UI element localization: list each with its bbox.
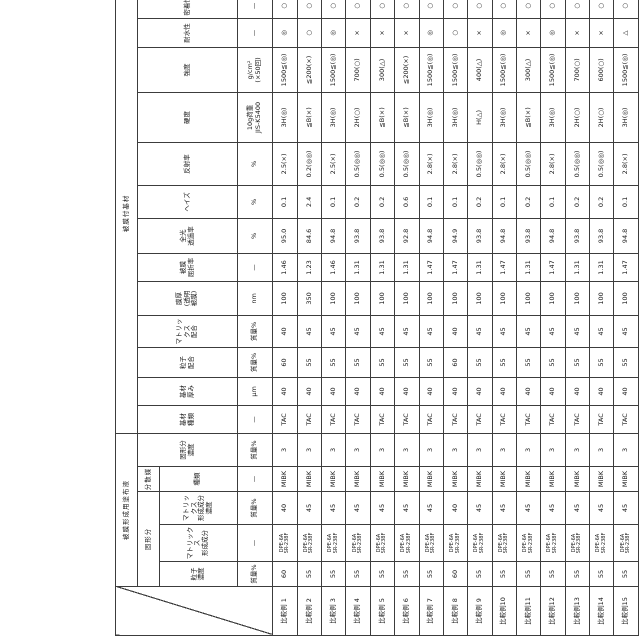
cell-14-adhesion: ○ [590, 0, 614, 18]
cell-3-matrix_blend: 45 [322, 315, 346, 347]
cell-10-water_resistance: ◎ [492, 18, 516, 47]
cell-13-matrix_conc: 45 [565, 492, 589, 525]
cell-10-particle_conc: 55 [492, 562, 516, 587]
cell-6-particle_conc: 55 [395, 562, 419, 587]
cell-2-water_resistance: ○ [297, 18, 321, 47]
col-header-substrate_thickness: 基材 厚み [138, 377, 238, 405]
cell-8-particle_conc: 60 [443, 562, 467, 587]
cell-9-adhesion: ○ [468, 0, 492, 18]
cell-7-particle_conc: 55 [419, 562, 443, 587]
cell-8-medium_type: MIBK [443, 467, 467, 492]
cell-13-film_thickness: 100 [565, 281, 589, 315]
col-header-adhesion: 密着性 [138, 0, 238, 18]
cell-6-strength: ≦200(×) [395, 47, 419, 92]
cell-12-hardness: 3H(◎) [541, 92, 565, 142]
cell-2-medium_type: MIBK [297, 467, 321, 492]
cell-3-strength: 1500≦(◎) [322, 47, 346, 92]
unit-haze: % [237, 185, 273, 218]
cell-9-matrix_blend: 45 [468, 315, 492, 347]
col-header-matrix_blend: マトリックス 配合 [138, 315, 238, 347]
cell-1-film_thickness: 100 [273, 281, 297, 315]
cell-14-matrix_blend: 45 [590, 315, 614, 347]
cell-1-strength: 1500≦(◎) [273, 47, 297, 92]
cell-15-hardness: 3H(◎) [614, 92, 639, 142]
cell-14-refractive_index: 1.31 [590, 253, 614, 281]
row-label-3: 比較例 3 [322, 587, 346, 636]
col-header-particle_blend: 粒子 配合 [138, 347, 238, 377]
cell-3-hardness: 3H(◎) [322, 92, 346, 142]
cell-3-particle_blend: 55 [322, 347, 346, 377]
cell-10-matrix_conc: 45 [492, 492, 516, 525]
unit-matrix_component: — [237, 525, 273, 562]
cell-7-adhesion: ○ [419, 0, 443, 18]
col-header-solid_conc: 固形分 濃度 [138, 433, 238, 466]
cell-5-matrix_blend: 45 [370, 315, 394, 347]
cell-9-transmittance: 93.8 [468, 218, 492, 253]
cell-15-adhesion: ○ [614, 0, 639, 18]
cell-13-haze: 0.2 [565, 185, 589, 218]
col-header-film_thickness: 膜厚 (透明 被膜) [138, 281, 238, 315]
cell-15-film_thickness: 100 [614, 281, 639, 315]
col-header-hardness: 硬度 [138, 92, 238, 142]
col-header-substrate_type: 基材 種類 [138, 405, 238, 433]
cell-11-particle_conc: 55 [516, 562, 540, 587]
cell-11-adhesion: ○ [516, 0, 540, 18]
cell-4-adhesion: ○ [346, 0, 370, 18]
cell-13-solid_conc: 3 [565, 433, 589, 466]
cell-15-water_resistance: △ [614, 18, 639, 47]
group-header-coated-substrate: 被膜付基材 [116, 0, 138, 433]
cell-12-solid_conc: 3 [541, 433, 565, 466]
cell-10-strength: 1500≦(◎) [492, 47, 516, 92]
cell-4-transmittance: 93.8 [346, 218, 370, 253]
cell-11-matrix_conc: 45 [516, 492, 540, 525]
cell-1-reflectance: 2.5(×) [273, 142, 297, 185]
cell-2-matrix_component: DPE-6A SR-238F [297, 525, 321, 562]
cell-15-reflectance: 2.8(×) [614, 142, 639, 185]
cell-15-matrix_component: DPE-6A SR-238F [614, 525, 639, 562]
cell-6-reflectance: 0.5(◎◎) [395, 142, 419, 185]
cell-13-strength: 700(○) [565, 47, 589, 92]
cell-6-medium_type: MIBK [395, 467, 419, 492]
unit-particle_blend: 質量% [237, 347, 273, 377]
row-label-14: 比較例14 [590, 587, 614, 636]
col-header-refractive_index: 被膜 屈折率 [138, 253, 238, 281]
cell-6-hardness: ≦B(×) [395, 92, 419, 142]
cell-10-matrix_component: DPE-6A SR-238F [492, 525, 516, 562]
cell-1-matrix_conc: 40 [273, 492, 297, 525]
cell-8-haze: 0.1 [443, 185, 467, 218]
cell-14-hardness: 2H(○) [590, 92, 614, 142]
cell-15-haze: 0.1 [614, 185, 639, 218]
cell-5-transmittance: 93.8 [370, 218, 394, 253]
cell-13-hardness: 2H(○) [565, 92, 589, 142]
cell-2-substrate_type: TAC [297, 405, 321, 433]
cell-1-adhesion: ○ [273, 0, 297, 18]
row-label-7: 比較例 7 [419, 587, 443, 636]
cell-2-particle_conc: 55 [297, 562, 321, 587]
cell-6-substrate_thickness: 40 [395, 377, 419, 405]
cell-7-film_thickness: 100 [419, 281, 443, 315]
cell-13-medium_type: MIBK [565, 467, 589, 492]
cell-9-particle_blend: 55 [468, 347, 492, 377]
cell-8-matrix_blend: 40 [443, 315, 467, 347]
cell-7-solid_conc: 3 [419, 433, 443, 466]
cell-10-adhesion: ○ [492, 0, 516, 18]
cell-11-transmittance: 93.8 [516, 218, 540, 253]
cell-6-adhesion: ○ [395, 0, 419, 18]
unit-particle_conc: 質量% [237, 562, 273, 587]
cell-6-particle_blend: 55 [395, 347, 419, 377]
row-label-9: 比較例 9 [468, 587, 492, 636]
cell-1-particle_conc: 60 [273, 562, 297, 587]
cell-3-particle_conc: 55 [322, 562, 346, 587]
cell-12-reflectance: 2.8(×) [541, 142, 565, 185]
cell-4-reflectance: 0.5(◎◎) [346, 142, 370, 185]
cell-8-transmittance: 94.9 [443, 218, 467, 253]
unit-film_thickness: nm [237, 281, 273, 315]
cell-2-strength: ≦200(×) [297, 47, 321, 92]
unit-strength: g/cm² (×50回) [237, 47, 273, 92]
col-header-particle_conc: 粒子 濃度 [159, 562, 237, 587]
cell-12-water_resistance: ◎ [541, 18, 565, 47]
unit-water_resistance: — [237, 18, 273, 47]
cell-12-matrix_conc: 45 [541, 492, 565, 525]
cell-14-solid_conc: 3 [590, 433, 614, 466]
cell-2-hardness: ≦B(×) [297, 92, 321, 142]
cell-3-haze: 0.1 [322, 185, 346, 218]
cell-6-refractive_index: 1.31 [395, 253, 419, 281]
unit-hardness: 10g荷重 JIS-K5400 [237, 92, 273, 142]
cell-8-strength: 1500≦(◎) [443, 47, 467, 92]
cell-5-matrix_conc: 45 [370, 492, 394, 525]
cell-14-strength: 600(○) [590, 47, 614, 92]
cell-7-refractive_index: 1.47 [419, 253, 443, 281]
cell-10-medium_type: MIBK [492, 467, 516, 492]
cell-11-film_thickness: 100 [516, 281, 540, 315]
cell-11-substrate_thickness: 40 [516, 377, 540, 405]
cell-10-substrate_thickness: 40 [492, 377, 516, 405]
cell-10-solid_conc: 3 [492, 433, 516, 466]
cell-5-particle_conc: 55 [370, 562, 394, 587]
cell-2-matrix_blend: 45 [297, 315, 321, 347]
cell-8-hardness: 3H(◎) [443, 92, 467, 142]
cell-9-reflectance: 0.5(◎◎) [468, 142, 492, 185]
cell-14-film_thickness: 100 [590, 281, 614, 315]
cell-15-particle_blend: 55 [614, 347, 639, 377]
cell-5-haze: 0.2 [370, 185, 394, 218]
cell-14-haze: 0.2 [590, 185, 614, 218]
subgroup-header-solid_content: 固形分 [138, 492, 159, 587]
row-label-15: 比較例15 [614, 587, 639, 636]
cell-1-particle_blend: 60 [273, 347, 297, 377]
cell-3-reflectance: 2.5(×) [322, 142, 346, 185]
cell-2-matrix_conc: 45 [297, 492, 321, 525]
cell-14-medium_type: MIBK [590, 467, 614, 492]
cell-2-solid_conc: 3 [297, 433, 321, 466]
cell-2-refractive_index: 1.23 [297, 253, 321, 281]
cell-7-water_resistance: ◎ [419, 18, 443, 47]
cell-5-substrate_thickness: 40 [370, 377, 394, 405]
cell-12-adhesion: ○ [541, 0, 565, 18]
cell-8-reflectance: 2.8(×) [443, 142, 467, 185]
cell-9-matrix_conc: 45 [468, 492, 492, 525]
unit-solid_conc: 質量% [237, 433, 273, 466]
cell-8-substrate_type: TAC [443, 405, 467, 433]
cell-12-haze: 0.1 [541, 185, 565, 218]
cell-13-matrix_blend: 45 [565, 315, 589, 347]
cell-1-haze: 0.1 [273, 185, 297, 218]
cell-1-substrate_type: TAC [273, 405, 297, 433]
unit-refractive_index: — [237, 253, 273, 281]
cell-6-film_thickness: 100 [395, 281, 419, 315]
row-label-6: 比較例 6 [395, 587, 419, 636]
cell-9-haze: 0.2 [468, 185, 492, 218]
cell-8-adhesion: ○ [443, 0, 467, 18]
cell-5-refractive_index: 1.31 [370, 253, 394, 281]
cell-12-matrix_blend: 45 [541, 315, 565, 347]
subgroup-header-dispersion_medium: 分散媒 [138, 467, 159, 492]
cell-9-substrate_thickness: 40 [468, 377, 492, 405]
cell-14-transmittance: 93.8 [590, 218, 614, 253]
cell-14-particle_conc: 55 [590, 562, 614, 587]
cell-10-haze: 0.1 [492, 185, 516, 218]
cell-13-substrate_type: TAC [565, 405, 589, 433]
cell-13-transmittance: 93.8 [565, 218, 589, 253]
cell-4-particle_blend: 55 [346, 347, 370, 377]
cell-10-matrix_blend: 45 [492, 315, 516, 347]
row-label-10: 比較例10 [492, 587, 516, 636]
cell-12-transmittance: 94.8 [541, 218, 565, 253]
cell-1-water_resistance: ◎ [273, 18, 297, 47]
cell-5-strength: 300(△) [370, 47, 394, 92]
cell-12-particle_blend: 55 [541, 347, 565, 377]
col-header-water_resistance: 耐水性 [138, 18, 238, 47]
cell-12-medium_type: MIBK [541, 467, 565, 492]
group-header-coating-liquid: 被膜形成用塗布液 [116, 433, 138, 586]
unit-substrate_thickness: μm [237, 377, 273, 405]
cell-13-substrate_thickness: 40 [565, 377, 589, 405]
unit-adhesion: — [237, 0, 273, 18]
cell-2-particle_blend: 55 [297, 347, 321, 377]
cell-13-matrix_component: DPE-6A SR-238F [565, 525, 589, 562]
cell-12-substrate_type: TAC [541, 405, 565, 433]
cell-7-particle_blend: 55 [419, 347, 443, 377]
cell-11-matrix_blend: 45 [516, 315, 540, 347]
cell-4-substrate_thickness: 40 [346, 377, 370, 405]
row-label-4: 比較例 4 [346, 587, 370, 636]
cell-10-hardness: 3H(◎) [492, 92, 516, 142]
cell-1-hardness: 3H(◎) [273, 92, 297, 142]
unit-matrix_blend: 質量% [237, 315, 273, 347]
cell-5-medium_type: MIBK [370, 467, 394, 492]
cell-2-reflectance: 0.2(◎◎) [297, 142, 321, 185]
cell-15-refractive_index: 1.47 [614, 253, 639, 281]
cell-11-water_resistance: × [516, 18, 540, 47]
cell-3-water_resistance: ◎ [322, 18, 346, 47]
cell-9-strength: 400(△) [468, 47, 492, 92]
cell-7-reflectance: 2.8(×) [419, 142, 443, 185]
cell-9-particle_conc: 55 [468, 562, 492, 587]
cell-9-solid_conc: 3 [468, 433, 492, 466]
col-header-matrix_conc: マトリックス 形成成分 濃度 [159, 492, 237, 525]
unit-matrix_conc: 質量% [237, 492, 273, 525]
cell-3-substrate_thickness: 40 [322, 377, 346, 405]
cell-12-substrate_thickness: 40 [541, 377, 565, 405]
row-label-12: 比較例12 [541, 587, 565, 636]
unit-transmittance: % [237, 218, 273, 253]
cell-7-substrate_thickness: 40 [419, 377, 443, 405]
cell-10-film_thickness: 100 [492, 281, 516, 315]
cell-13-particle_blend: 55 [565, 347, 589, 377]
cell-5-substrate_type: TAC [370, 405, 394, 433]
cell-6-solid_conc: 3 [395, 433, 419, 466]
cell-13-reflectance: 0.5(◎◎) [565, 142, 589, 185]
cell-13-adhesion: ○ [565, 0, 589, 18]
cell-11-hardness: ≦B(×) [516, 92, 540, 142]
cell-4-medium_type: MIBK [346, 467, 370, 492]
cell-8-refractive_index: 1.47 [443, 253, 467, 281]
col-header-haze: ヘイズ [138, 185, 238, 218]
cell-8-substrate_thickness: 40 [443, 377, 467, 405]
cell-5-matrix_component: DPE-6A SR-238F [370, 525, 394, 562]
cell-7-strength: 1500≦(◎) [419, 47, 443, 92]
cell-2-substrate_thickness: 40 [297, 377, 321, 405]
cell-4-matrix_conc: 45 [346, 492, 370, 525]
cell-15-particle_conc: 55 [614, 562, 639, 587]
cell-1-substrate_thickness: 40 [273, 377, 297, 405]
cell-1-refractive_index: 1.46 [273, 253, 297, 281]
cell-10-substrate_type: TAC [492, 405, 516, 433]
row-label-5: 比較例 5 [370, 587, 394, 636]
cell-2-adhesion: ○ [297, 0, 321, 18]
cell-8-solid_conc: 3 [443, 433, 467, 466]
cell-9-hardness: H(△) [468, 92, 492, 142]
cell-3-matrix_conc: 45 [322, 492, 346, 525]
cell-11-strength: 300(△) [516, 47, 540, 92]
cell-5-film_thickness: 100 [370, 281, 394, 315]
cell-11-medium_type: MIBK [516, 467, 540, 492]
cell-4-substrate_type: TAC [346, 405, 370, 433]
cell-6-matrix_blend: 45 [395, 315, 419, 347]
cell-2-haze: 2.4 [297, 185, 321, 218]
cell-7-matrix_conc: 45 [419, 492, 443, 525]
cell-15-transmittance: 94.8 [614, 218, 639, 253]
cell-9-matrix_component: DPE-6A SR-238F [468, 525, 492, 562]
cell-10-particle_blend: 55 [492, 347, 516, 377]
unit-substrate_type: — [237, 405, 273, 433]
cell-8-particle_blend: 60 [443, 347, 467, 377]
cell-4-matrix_component: DPE-6A SR-238F [346, 525, 370, 562]
cell-9-water_resistance: × [468, 18, 492, 47]
cell-14-water_resistance: × [590, 18, 614, 47]
row-label-8: 比較例 8 [443, 587, 467, 636]
cell-3-adhesion: ○ [322, 0, 346, 18]
cell-10-transmittance: 94.8 [492, 218, 516, 253]
col-header-reflectance: 反射率 [138, 142, 238, 185]
cell-6-matrix_component: DPE-6A SR-238F [395, 525, 419, 562]
cell-11-refractive_index: 1.31 [516, 253, 540, 281]
cell-7-matrix_blend: 45 [419, 315, 443, 347]
cell-5-particle_blend: 55 [370, 347, 394, 377]
cell-11-reflectance: 0.5(◎◎) [516, 142, 540, 185]
cell-15-substrate_type: TAC [614, 405, 639, 433]
cell-2-film_thickness: 350 [297, 281, 321, 315]
cell-10-refractive_index: 1.47 [492, 253, 516, 281]
cell-11-haze: 0.2 [516, 185, 540, 218]
cell-4-hardness: 2H(○) [346, 92, 370, 142]
cell-4-water_resistance: × [346, 18, 370, 47]
patent-page: { "page": { "background": "#ffffff", "li… [0, 0, 640, 640]
cell-7-medium_type: MIBK [419, 467, 443, 492]
cell-15-medium_type: MIBK [614, 467, 639, 492]
cell-12-film_thickness: 100 [541, 281, 565, 315]
cell-1-medium_type: MIBK [273, 467, 297, 492]
cell-4-particle_conc: 55 [346, 562, 370, 587]
cell-9-refractive_index: 1.31 [468, 253, 492, 281]
cell-4-refractive_index: 1.31 [346, 253, 370, 281]
cell-5-solid_conc: 3 [370, 433, 394, 466]
cell-12-strength: 1500≦(◎) [541, 47, 565, 92]
cell-11-matrix_component: DPE-6A SR-238F [516, 525, 540, 562]
cell-14-matrix_component: DPE-6A SR-238F [590, 525, 614, 562]
cell-3-medium_type: MIBK [322, 467, 346, 492]
cell-6-substrate_type: TAC [395, 405, 419, 433]
row-label-11: 比較例11 [516, 587, 540, 636]
cell-15-matrix_blend: 45 [614, 315, 639, 347]
cell-11-particle_blend: 55 [516, 347, 540, 377]
cell-8-matrix_component: DPE-6A SR-238F [443, 525, 467, 562]
cell-14-particle_blend: 55 [590, 347, 614, 377]
cell-6-water_resistance: × [395, 18, 419, 47]
col-header-matrix_component: マトリックス 形成成分 [159, 525, 237, 562]
cell-15-solid_conc: 3 [614, 433, 639, 466]
rotated-table-container: 被膜形成用塗布液被膜付基材固形分分散媒固形分 濃度基材 種類基材 厚み粒子 配合… [115, 4, 639, 636]
cell-1-matrix_blend: 40 [273, 315, 297, 347]
cell-14-substrate_type: TAC [590, 405, 614, 433]
table-body: 被膜形成用塗布液被膜付基材固形分分散媒固形分 濃度基材 種類基材 厚み粒子 配合… [116, 0, 639, 636]
cell-4-solid_conc: 3 [346, 433, 370, 466]
cell-15-strength: 1500≦(◎) [614, 47, 639, 92]
cell-12-particle_conc: 55 [541, 562, 565, 587]
col-header-strength: 強度 [138, 47, 238, 92]
cell-3-film_thickness: 100 [322, 281, 346, 315]
cell-9-substrate_type: TAC [468, 405, 492, 433]
cell-9-film_thickness: 100 [468, 281, 492, 315]
row-label-1: 比較例 1 [273, 587, 297, 636]
cell-8-water_resistance: ○ [443, 18, 467, 47]
cell-1-solid_conc: 3 [273, 433, 297, 466]
cell-7-matrix_component: DPE-6A SR-238F [419, 525, 443, 562]
cell-2-transmittance: 84.6 [297, 218, 321, 253]
cell-15-matrix_conc: 45 [614, 492, 639, 525]
cell-13-refractive_index: 1.31 [565, 253, 589, 281]
cell-15-substrate_thickness: 40 [614, 377, 639, 405]
cell-7-hardness: 3H(◎) [419, 92, 443, 142]
cell-7-substrate_type: TAC [419, 405, 443, 433]
cell-4-film_thickness: 100 [346, 281, 370, 315]
cell-6-haze: 0.6 [395, 185, 419, 218]
cell-3-transmittance: 94.8 [322, 218, 346, 253]
col-header-transmittance: 全光 透過率 [138, 218, 238, 253]
cell-5-adhesion: ○ [370, 0, 394, 18]
cell-5-hardness: ≦B(×) [370, 92, 394, 142]
cell-4-haze: 0.2 [346, 185, 370, 218]
cell-12-refractive_index: 1.47 [541, 253, 565, 281]
cell-7-transmittance: 94.8 [419, 218, 443, 253]
cell-3-solid_conc: 3 [322, 433, 346, 466]
cell-12-matrix_component: DPE-6A SR-238F [541, 525, 565, 562]
